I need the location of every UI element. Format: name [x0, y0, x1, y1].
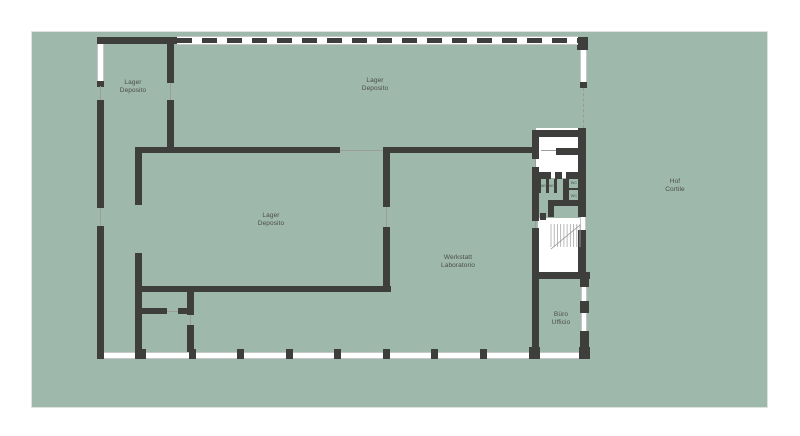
stairs-icon	[551, 224, 580, 249]
room-label-wc-1: WC	[541, 184, 547, 189]
wall-segment	[383, 227, 390, 292]
window-east-office-2	[581, 313, 587, 331]
window-band-south	[97, 352, 590, 359]
wall-segment	[139, 286, 391, 292]
wall-segment	[97, 100, 104, 208]
wall-segment	[580, 301, 589, 313]
room-label-wc-4: WC	[571, 194, 577, 199]
wall-segment	[577, 37, 588, 50]
room-label-hof: Hof Cortile	[665, 177, 684, 193]
wall-segment	[167, 37, 174, 83]
wall-segment	[237, 349, 244, 359]
wall-segment	[548, 206, 554, 217]
wall-segment	[539, 172, 551, 179]
room-label-wc-3: WC	[571, 181, 577, 186]
wall-segment	[139, 308, 167, 314]
wall-segment	[97, 37, 177, 44]
wall-segment	[189, 349, 196, 359]
wall-segment	[532, 228, 539, 359]
wall-segment	[556, 148, 582, 155]
room-label-lager-northwest: Lager Deposito	[120, 78, 146, 94]
wall-segment	[135, 147, 142, 205]
wall-segment	[187, 325, 194, 352]
wall-segment	[563, 179, 569, 201]
wall-segment	[97, 349, 104, 359]
opening-line	[100, 86, 101, 100]
opening-line	[340, 150, 383, 151]
opening-line	[541, 150, 556, 151]
wall-segment	[167, 100, 174, 153]
window-east-office-1	[581, 287, 587, 301]
wall-segment	[383, 147, 390, 207]
room-label-buero: Büro Ufficio	[552, 310, 571, 326]
wall-segment	[536, 130, 582, 137]
wall-segment	[555, 172, 562, 179]
plan-layer: Lager DepositoLager DepositoLager Deposi…	[0, 0, 800, 436]
wall-segment	[480, 349, 487, 359]
opening-line	[190, 315, 191, 325]
room-label-werkstatt: Werkstatt Laboratorio	[441, 253, 475, 269]
wall-segment	[579, 347, 590, 359]
wall-segment	[178, 308, 194, 314]
wall-segment	[566, 172, 586, 179]
wall-segment	[529, 347, 540, 359]
wall-segment	[139, 349, 146, 359]
boundary-dashed-line	[583, 88, 585, 128]
room-label-lager-north: Lager Deposito	[362, 76, 388, 92]
opening-line	[535, 159, 536, 167]
wall-segment	[286, 349, 293, 359]
opening-line	[386, 207, 387, 227]
dashed-wall-north	[177, 36, 578, 45]
opening-line	[100, 208, 101, 226]
room-label-lager-center: Lager Deposito	[258, 211, 284, 227]
window-east-top	[580, 50, 587, 83]
wall-segment	[431, 349, 438, 359]
wall-segment	[135, 253, 142, 359]
wall-segment	[334, 349, 341, 359]
wall-segment	[580, 273, 589, 287]
wall-segment	[135, 147, 340, 153]
window-west-top	[97, 44, 104, 81]
room-label-wc-2: WC	[549, 184, 555, 189]
dashed-wall-pattern	[177, 38, 578, 43]
wall-segment	[580, 331, 589, 347]
opening-line	[170, 83, 171, 100]
wall-segment	[97, 226, 104, 352]
wall-segment	[383, 349, 390, 359]
window-east-stair	[580, 217, 586, 230]
wall-segment	[532, 167, 539, 221]
wall-segment	[383, 147, 535, 153]
floor-plan-canvas: Lager DepositoLager DepositoLager Deposi…	[0, 0, 800, 436]
wall-segment	[569, 188, 580, 190]
opening-line	[535, 221, 536, 228]
opening-line	[167, 311, 178, 312]
wall-segment	[540, 213, 546, 220]
